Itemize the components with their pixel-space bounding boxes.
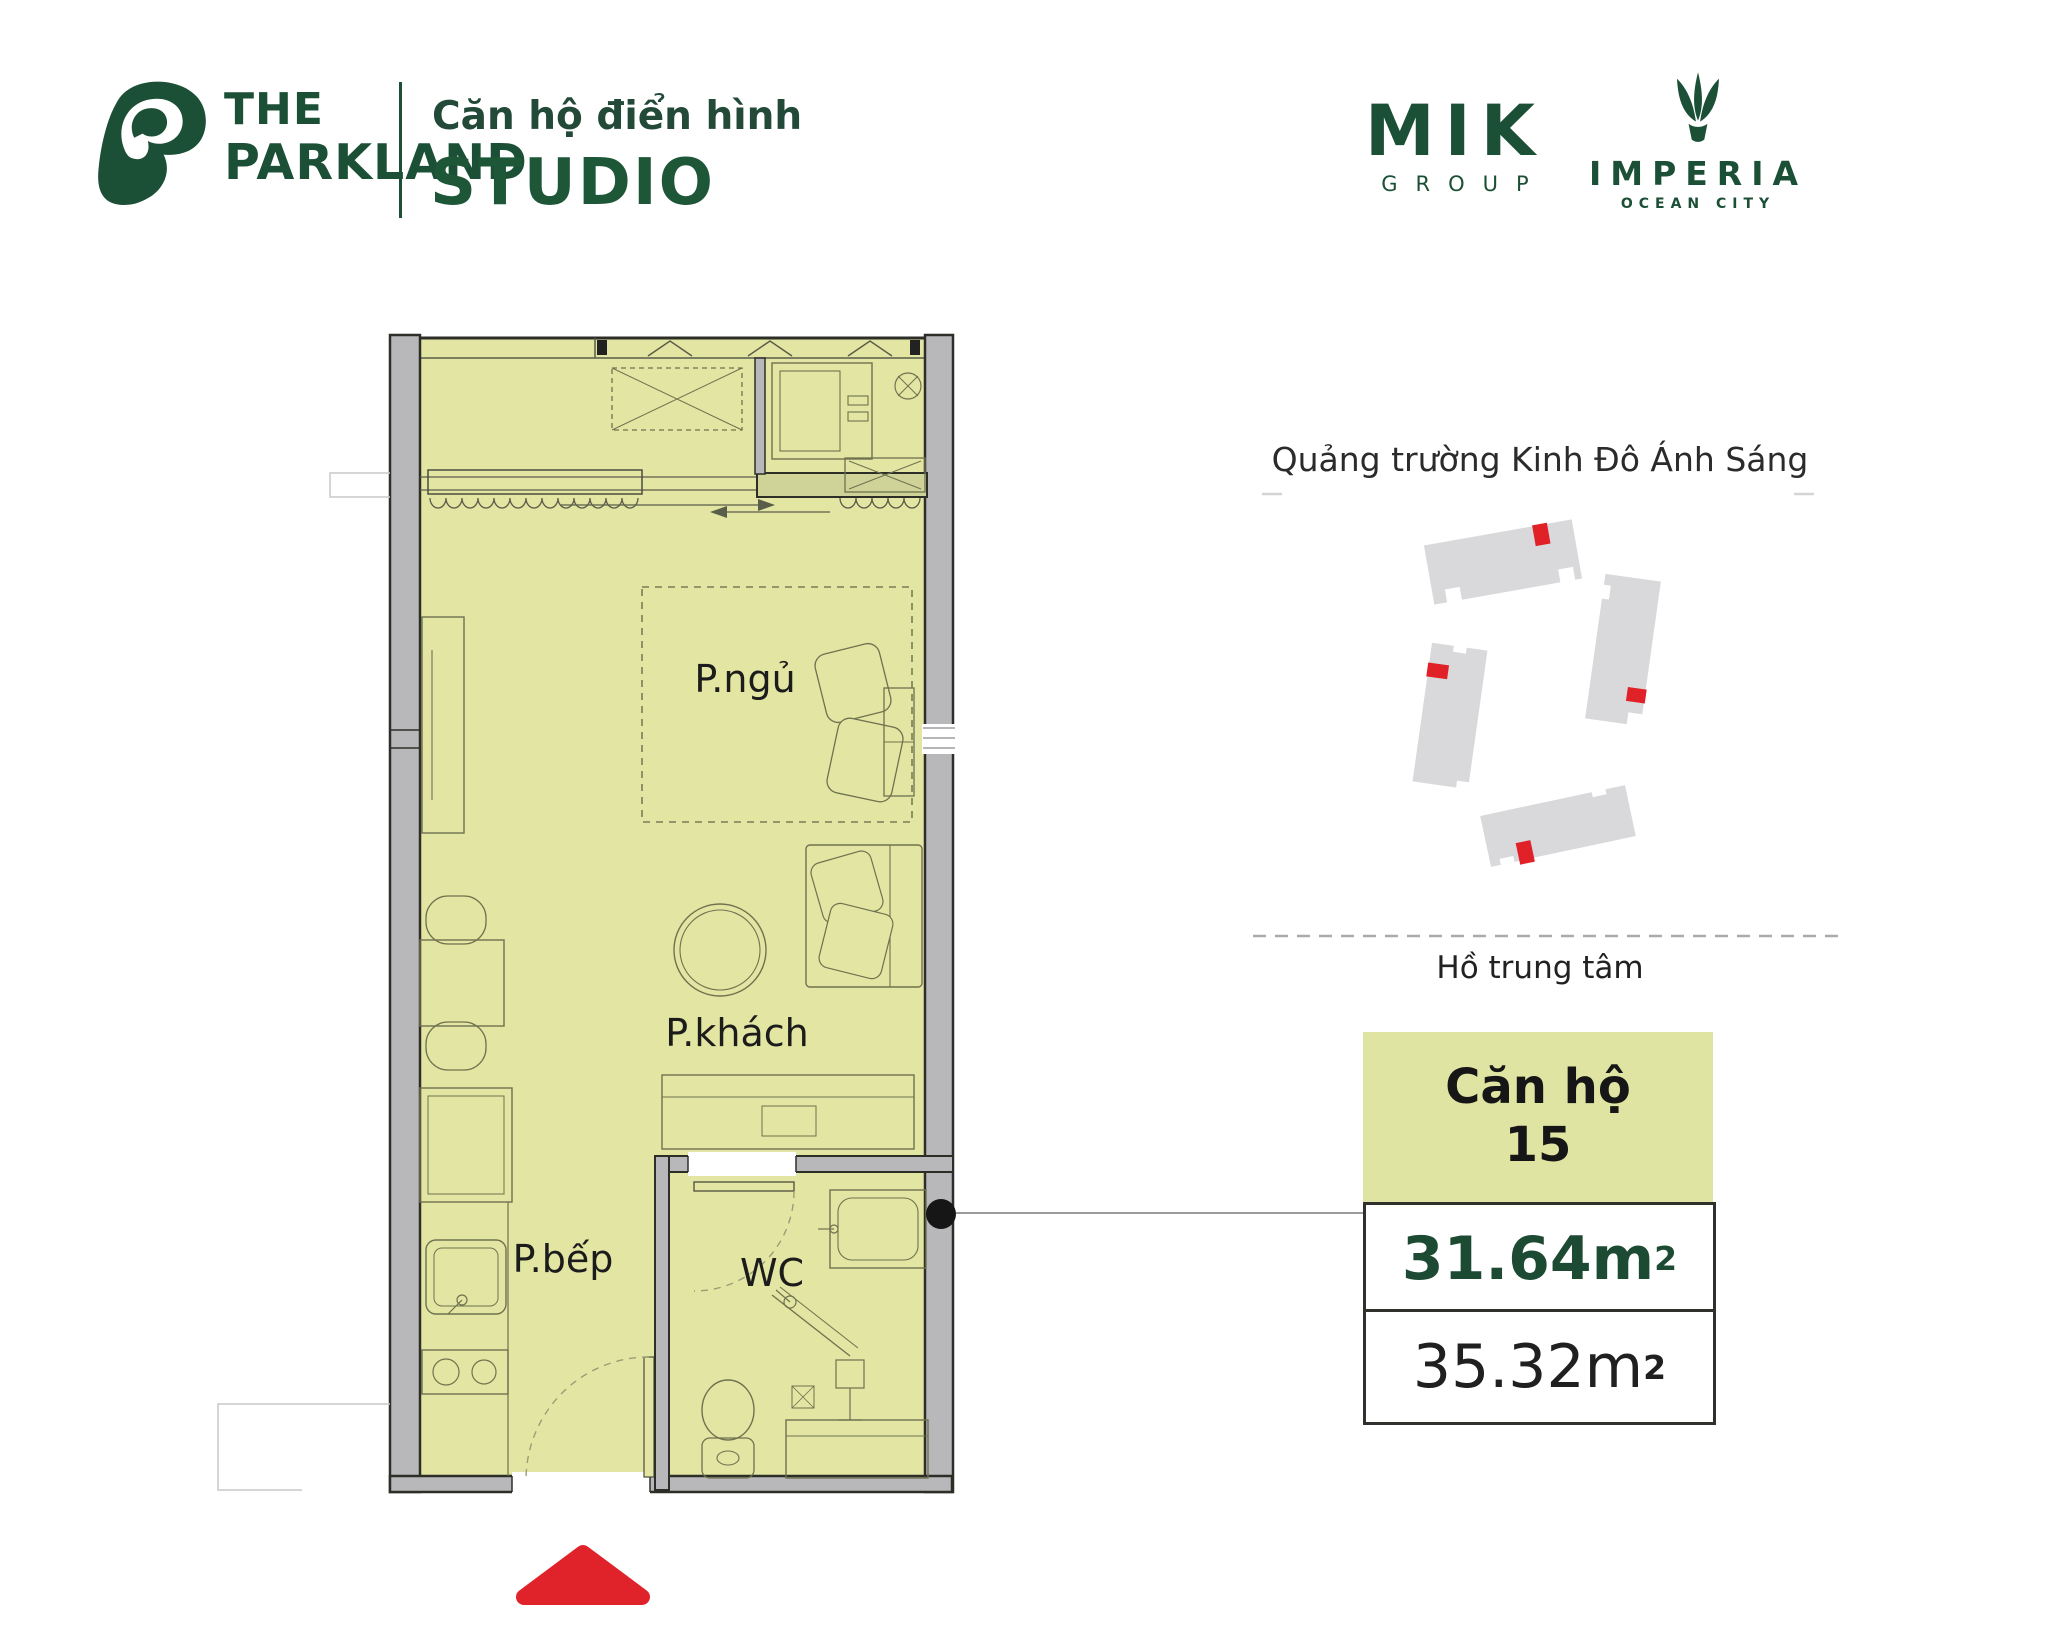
wc-door-leaf — [694, 1182, 794, 1191]
unit-card-number: 15 — [1505, 1117, 1572, 1175]
imperia-logo: IMPERIA OCEAN CITY — [1578, 66, 1818, 212]
living-label: P.khách — [665, 1011, 808, 1055]
leader-dot — [926, 1199, 956, 1229]
mik-logo-text: MIK — [1340, 96, 1570, 166]
gross-area-unit: m — [1585, 1332, 1643, 1402]
site-map — [1230, 480, 1870, 960]
imperia-logo-sub: OCEAN CITY — [1578, 196, 1818, 212]
unit-marker — [1426, 662, 1449, 679]
site-building — [1424, 518, 1582, 605]
entry-door-leaf — [644, 1357, 654, 1477]
site-building — [1479, 778, 1637, 872]
page: THE PARKLAND Căn hộ điển hình STUDIO MIK… — [0, 0, 2048, 1632]
gross-area-sup: 2 — [1643, 1348, 1666, 1387]
kitchen-label: P.bếp — [513, 1237, 614, 1281]
header-divider — [399, 82, 402, 218]
unit-marker — [1626, 687, 1647, 704]
gross-area-box: 35.32m2 — [1363, 1309, 1716, 1425]
net-area-value: 31.64 — [1402, 1224, 1592, 1294]
bedroom-label: P.ngủ — [694, 657, 795, 701]
site-building — [1411, 637, 1489, 795]
entry-opening — [512, 1472, 650, 1496]
site-top-label: Quảng trường Kinh Đô Ánh Sáng — [1230, 440, 1850, 479]
net-area-box: 31.64m2 — [1363, 1202, 1716, 1315]
mik-logo-sub: GROUP — [1340, 172, 1570, 196]
unit-type-title: STUDIO — [430, 146, 715, 220]
gross-area-value: 35.32 — [1413, 1332, 1585, 1402]
entry-arrow-icon — [524, 1553, 642, 1597]
neighbor-outline — [218, 473, 390, 1490]
site-bottom-label: Hồ trung tâm — [1230, 950, 1850, 986]
wc-label: WC — [740, 1251, 804, 1295]
unit-subtitle: Căn hộ điển hình — [432, 94, 802, 139]
imperia-tulip-icon — [1578, 66, 1818, 150]
floor-plan: P.ngủ P.khách P.bếp WC — [140, 330, 970, 1620]
imperia-logo-text: IMPERIA — [1578, 154, 1818, 193]
site-building — [1579, 573, 1662, 727]
unit-card-header: Căn hộ 15 — [1363, 1032, 1713, 1202]
net-area-sup: 2 — [1654, 1239, 1677, 1278]
net-area-unit: m — [1592, 1224, 1655, 1294]
leader-line — [956, 1212, 1363, 1214]
mik-group-logo: MIK GROUP — [1340, 96, 1570, 196]
parkland-logo-icon — [88, 76, 214, 208]
unit-card-title: Căn hộ — [1445, 1059, 1631, 1117]
